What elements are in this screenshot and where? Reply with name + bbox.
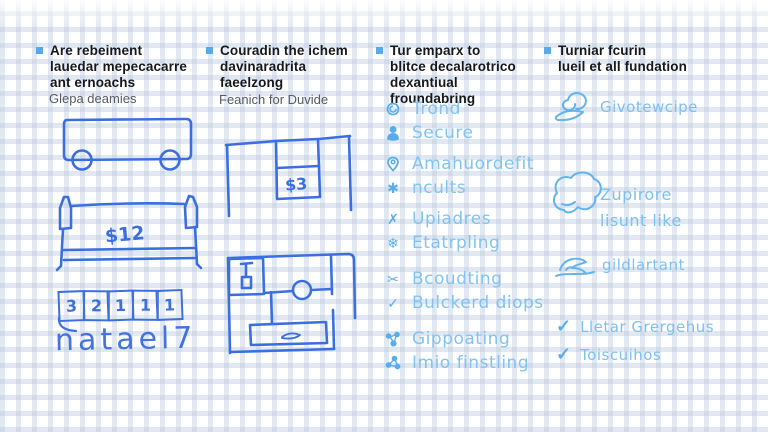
column3-list: Trond Secure Amahuordefit ✱ ncults bbox=[384, 97, 544, 375]
share-nodes-icon bbox=[384, 331, 402, 347]
price-label: $12 bbox=[104, 222, 145, 247]
list-item: Amahuordefit bbox=[384, 152, 544, 176]
list-item-label: Imio finstling bbox=[412, 353, 529, 373]
column1-header: Are rebeiment lauedar mepecacarre ant er… bbox=[36, 43, 194, 91]
snowflake-icon: ❄ bbox=[384, 235, 402, 252]
column4-item-label: Lletar Grergehus bbox=[580, 318, 714, 336]
column4-item-label: Toiscuihos bbox=[580, 346, 661, 364]
column4-check-item: ✓ Lletar Grergehus bbox=[556, 316, 714, 337]
list-item: ✂ Bcoudting bbox=[384, 267, 544, 291]
pin-icon bbox=[384, 156, 402, 172]
list-item: Trond bbox=[384, 97, 544, 121]
column4-title: Turniar fcurin lueil et all fundation bbox=[558, 43, 687, 75]
bus-sketch bbox=[57, 114, 197, 176]
check-icon: ✓ bbox=[556, 344, 571, 365]
list-item-label: Amahuordefit bbox=[412, 154, 534, 174]
column4-check-item: ✓ Toiscuihos bbox=[556, 344, 661, 365]
background-fade bbox=[0, 0, 768, 28]
list-item: ✗ Upiadres bbox=[384, 207, 544, 231]
x-icon: ✗ bbox=[384, 211, 402, 228]
bird-doodle-icon bbox=[552, 248, 598, 284]
list-item: Imio finstling bbox=[384, 351, 544, 375]
pump-icon bbox=[241, 263, 252, 277]
list-item-label: ncults bbox=[412, 178, 466, 198]
column4-header: Turniar fcurin lueil et all fundation bbox=[544, 43, 724, 75]
list-item: Gippoating bbox=[384, 327, 544, 351]
list-item-label: Upiadres bbox=[412, 209, 491, 229]
rack-sketch: $12 bbox=[53, 194, 205, 282]
column1-subtitle: Glepa deamies bbox=[49, 91, 136, 106]
list-item-label: Secure bbox=[412, 123, 473, 143]
scissors-icon: ✂ bbox=[384, 271, 402, 288]
check-icon: ✓ bbox=[384, 295, 402, 312]
bullet-icon bbox=[376, 47, 383, 54]
bullet-icon bbox=[206, 47, 213, 54]
pump-icon bbox=[242, 277, 251, 288]
column4-item-label: gildlartant bbox=[602, 256, 685, 274]
shelf-sketch: $3 bbox=[222, 128, 354, 220]
price-label: $3 bbox=[284, 174, 308, 195]
strip-cell: 1 bbox=[107, 289, 135, 321]
list-item: Secure bbox=[384, 121, 544, 145]
handwritten-caption: natael7 bbox=[55, 321, 197, 358]
share-nodes-icon bbox=[384, 355, 402, 371]
column4-item-label: Zupirore lisunt like bbox=[600, 182, 682, 233]
person-icon bbox=[384, 125, 402, 141]
cloud-doodle-icon bbox=[548, 166, 606, 220]
swirl-doodle-icon bbox=[552, 90, 594, 126]
column2-header: Couradin the ichem davinaradrita faeelzo… bbox=[206, 43, 366, 91]
bullet-icon bbox=[544, 47, 551, 54]
list-item: ✓ Bulckerd diops bbox=[384, 291, 544, 315]
asterisk-icon: ✱ bbox=[384, 180, 402, 197]
list-item-label: Bcoudting bbox=[412, 269, 502, 289]
floorplan-sketch bbox=[222, 248, 360, 360]
whiteboard: Are rebeiment lauedar mepecacarre ant er… bbox=[0, 0, 768, 432]
check-icon: ✓ bbox=[556, 316, 571, 337]
list-item-label: Trond bbox=[412, 99, 461, 119]
list-item: ❄ Etatrpling bbox=[384, 231, 544, 255]
column1-title: Are rebeiment lauedar mepecacarre ant er… bbox=[50, 43, 187, 91]
list-item-label: Bulckerd diops bbox=[412, 293, 544, 313]
column2-subtitle: Feanich for Duvide bbox=[219, 92, 328, 107]
list-item-label: Gippoating bbox=[412, 329, 510, 349]
list-item-label: Etatrpling bbox=[412, 233, 500, 253]
bullet-icon bbox=[36, 47, 43, 54]
column4-item-label: Givotewcipe bbox=[600, 98, 698, 116]
column2-title: Couradin the ichem davinaradrita faeelzo… bbox=[220, 43, 348, 91]
coin-icon bbox=[384, 101, 402, 117]
list-item: ✱ ncults bbox=[384, 176, 544, 200]
strip-cell: 1 bbox=[156, 289, 184, 321]
